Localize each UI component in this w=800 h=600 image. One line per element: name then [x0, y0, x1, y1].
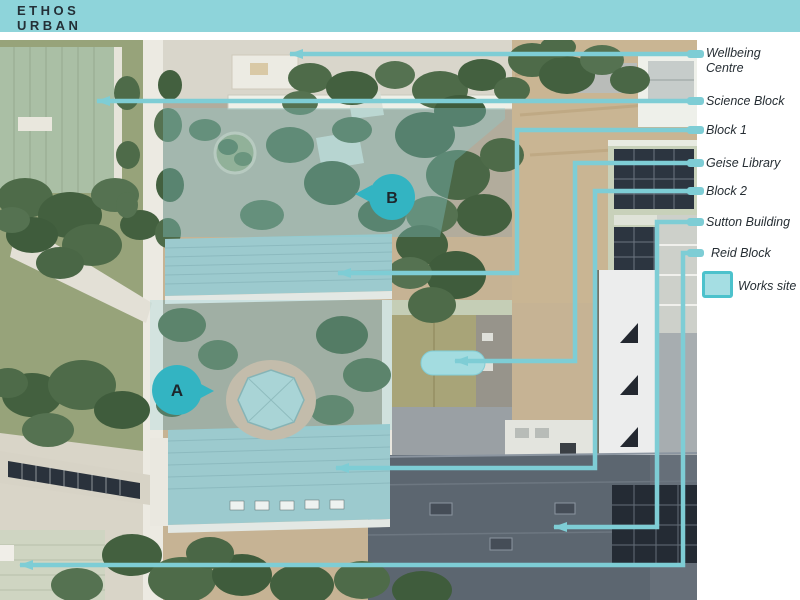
marker-a-letter: A — [171, 381, 183, 400]
brand-logo: ETHOS URBAN — [17, 3, 81, 34]
legend-label-science-block: Science Block — [706, 94, 785, 109]
legend-label-block-1: Block 1 — [706, 123, 747, 138]
brand-line-2: URBAN — [17, 18, 81, 33]
marker-b-letter: B — [386, 190, 398, 207]
legend-label-block-2: Block 2 — [706, 184, 747, 199]
legend-label-reid-block: Reid Block — [711, 246, 771, 261]
top-bar: ETHOS URBAN — [0, 0, 800, 32]
page: ETHOS URBAN — [0, 0, 800, 600]
legend-label-geise-library: Geise Library — [706, 156, 780, 171]
legend-label-works-site: Works site — [738, 279, 796, 294]
legend-label-sutton-building: Sutton Building — [706, 215, 790, 230]
legend-label-wellbeing-centre: Wellbeing Centre — [706, 46, 778, 77]
aerial-map: A B — [0, 33, 800, 600]
brand-line-1: ETHOS — [17, 3, 81, 18]
works-site-swatch — [702, 271, 733, 298]
